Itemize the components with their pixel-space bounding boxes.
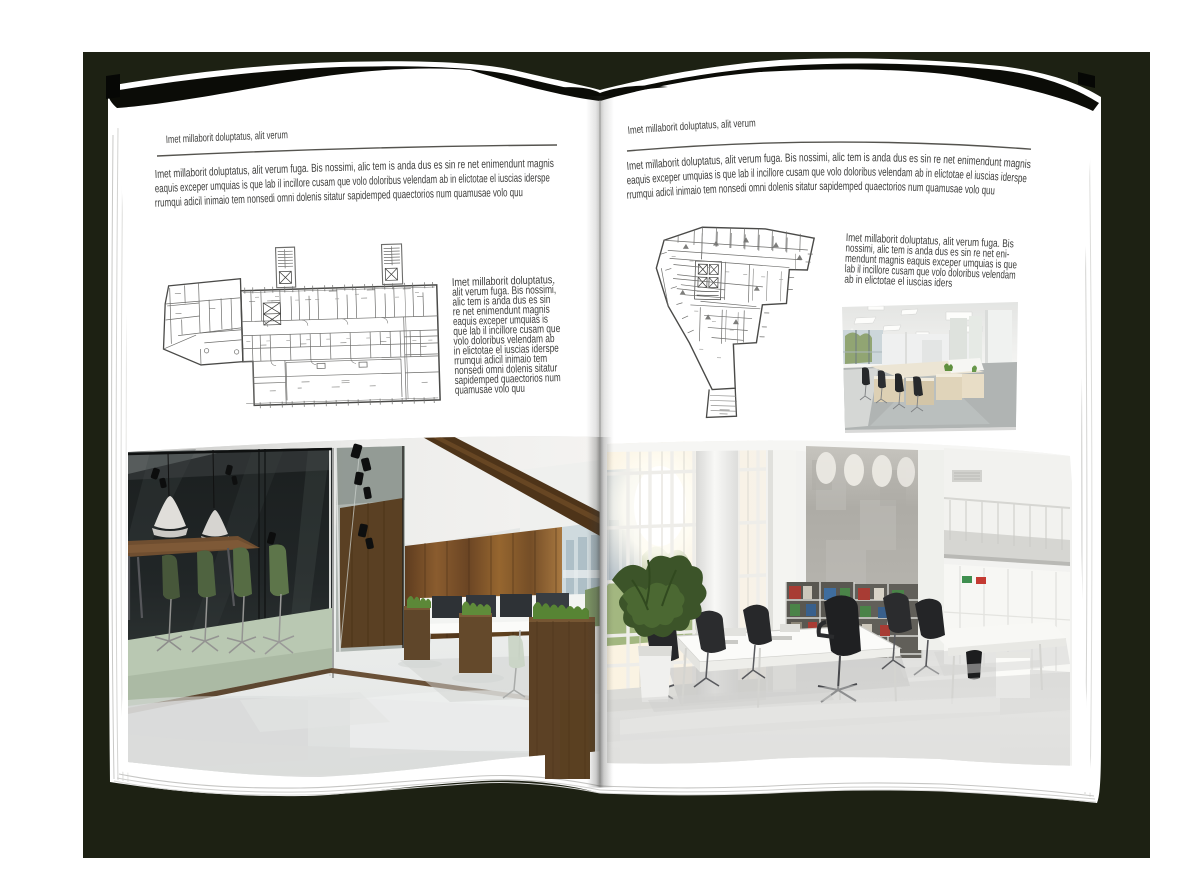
svg-text:quamusae volo quu: quamusae volo quu <box>455 383 525 397</box>
